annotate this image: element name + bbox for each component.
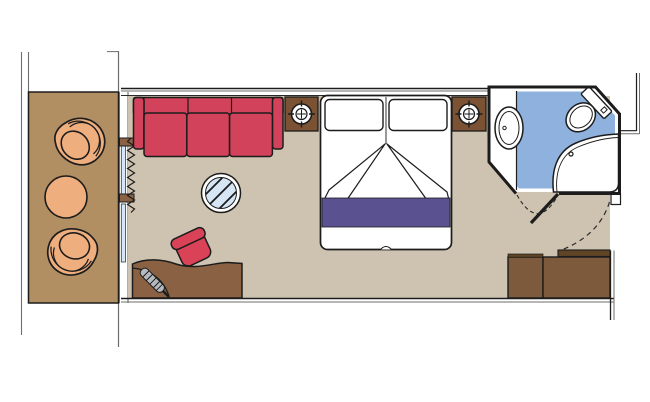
double-bed-icon	[321, 96, 452, 250]
nightstand-right	[452, 97, 486, 131]
entry-door-leaf	[558, 250, 610, 257]
sofa-armrest-left	[134, 98, 145, 150]
wardrobe-top-strip	[508, 254, 543, 257]
sofa-cushion-3	[230, 113, 273, 157]
entry-door-jamb	[611, 194, 621, 205]
washbasin-drain	[503, 126, 506, 129]
balcony	[29, 92, 119, 303]
round-table-icon	[45, 176, 87, 218]
floor-plan-svg	[0, 0, 650, 402]
bed-runner-icon	[322, 198, 450, 227]
glass-pane-upper	[121, 146, 125, 194]
pillow-left	[325, 100, 383, 131]
glass-pane-lower	[121, 204, 125, 262]
wardrobe-icon	[543, 257, 610, 298]
sofa-armrest-right	[273, 98, 284, 150]
wardrobe-icon	[508, 257, 543, 298]
cabin-floor-plan	[0, 0, 650, 402]
pillow-right	[389, 100, 447, 131]
sofa-cushion-1	[144, 113, 187, 157]
sofa-cushion-2	[187, 113, 230, 157]
shower-drain	[569, 152, 573, 156]
nightstand-left	[285, 97, 318, 131]
sofa-backrest	[134, 98, 284, 115]
corridor-wall-inner	[620, 73, 637, 131]
sofa-icon	[134, 98, 284, 157]
